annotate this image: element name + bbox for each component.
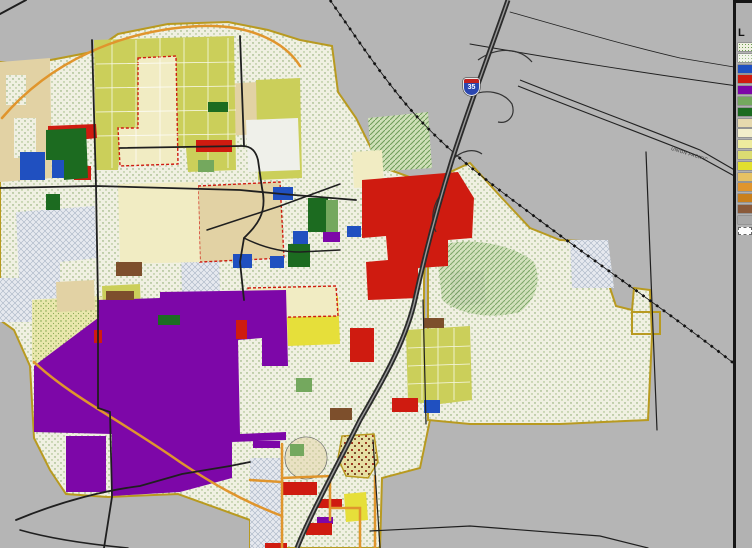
commercial-zone [265,543,287,548]
map-canvas[interactable]: 35 UNION PACIFIC L [0,0,752,548]
public-zone [424,400,440,413]
commercial-zone [392,398,418,412]
legend-swatch [738,43,752,51]
legend-panel: L [736,0,752,548]
industrial-zone [66,436,106,492]
legend-swatch [738,97,752,105]
park-zone [198,160,214,172]
legend-swatch [738,183,752,191]
legend-swatch [738,205,752,213]
white-zone [246,118,300,172]
park-zone [208,102,228,112]
industrial-zone [253,441,280,448]
legend-swatch [738,216,752,224]
legend-swatch [738,162,752,170]
legend-swatch [738,173,752,181]
public-zone [233,254,252,268]
interstate-shield: 35 [464,79,479,95]
legend-swatch [738,119,752,127]
legend-swatch [738,54,752,62]
legend-swatch [738,108,752,116]
legend-swatch [738,140,752,148]
brown-zone [106,291,134,300]
brown-zone [424,318,444,328]
public-zone [270,256,284,268]
legend-swatch [738,65,752,73]
park-zone [296,378,312,392]
park-zone [308,198,328,232]
park-zone [326,200,338,232]
legend-swatch [738,75,752,83]
park-zone [46,194,60,210]
park-zone [288,244,310,267]
commercial-zone [236,320,247,339]
zoning-map [0,0,752,548]
tan-zone [56,280,95,312]
pale-zone [118,182,200,264]
brown-zone [330,408,352,420]
legend-swatch-list [738,43,752,235]
legend-swatch [738,86,752,94]
legend-title: L [738,27,752,39]
legend-swatch [738,227,752,235]
legend-swatch [738,194,752,202]
tan-parcel-speckle [6,75,26,105]
old-town-green [290,444,304,456]
route-number: 35 [464,83,479,93]
commercial-zone [350,328,374,362]
hatch-area [250,458,282,548]
commercial-zone [282,482,317,495]
legend-swatch [738,129,752,137]
public-zone [293,231,308,245]
tan-zone [198,182,284,262]
old-town-circle-texture [285,437,327,479]
legend-swatch [738,151,752,159]
brown-zone [116,262,142,276]
public-zone [20,152,45,180]
public-zone [347,226,361,237]
park-zone [158,315,180,325]
industrial-zone [323,232,340,242]
